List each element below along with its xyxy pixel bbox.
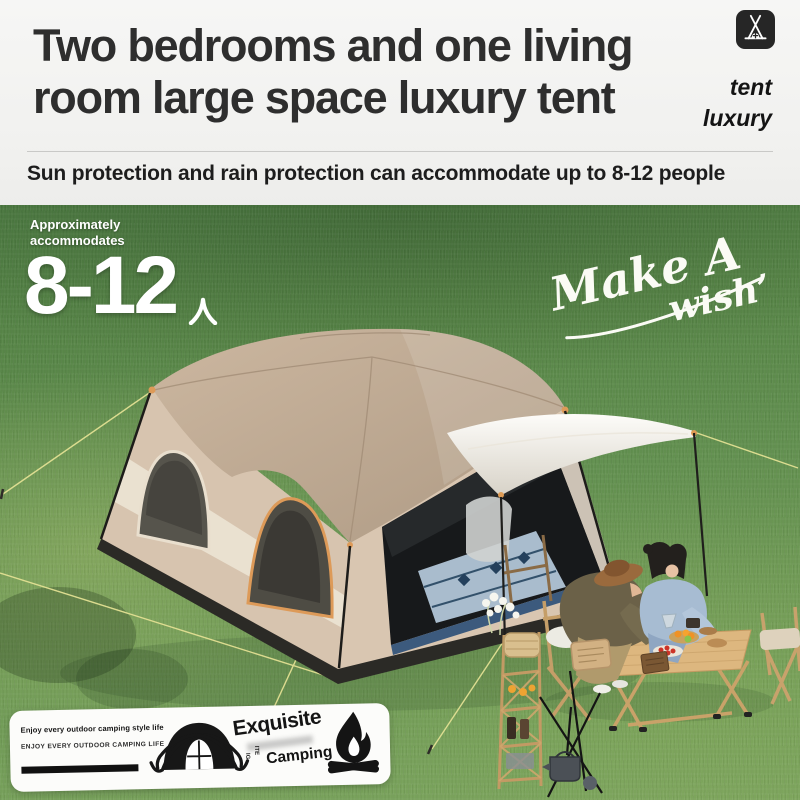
capacity-label-line1: Approximately [30,217,125,233]
product-poster: Two bedrooms and one living room large s… [0,0,800,800]
title-line-1: Two bedrooms and one living [33,20,723,72]
header-divider [27,151,773,152]
subtitle: Sun protection and rain protection can a… [27,162,787,186]
page-title: Two bedrooms and one living room large s… [33,20,723,124]
header: Two bedrooms and one living room large s… [0,0,800,205]
right-chair-illustration [759,607,800,704]
badge-vertical-text-2: IG [244,753,250,759]
person-kanji-icon [188,297,218,325]
badge-vertical-text-1: ITE [253,746,259,755]
tent-icon [740,12,771,48]
badge-bar [21,764,138,773]
brand-words: tent luxury [703,72,772,134]
title-line-2: room large space luxury tent [33,72,723,124]
brand-word-tent: tent [703,72,772,103]
badge-tagline: Enjoy every outdoor camping style life [21,723,164,735]
brand-logo [736,10,775,49]
campfire-icon [321,708,384,777]
wood-sign-illustration [571,639,612,671]
brand-word-luxury: luxury [703,103,772,134]
badge-tagline-caps: ENJOY EVERY OUTDOOR CAMPING LIFE [21,741,165,751]
capacity-value: 8-12 [24,245,176,327]
camping-badge: Enjoy every outdoor camping style life E… [9,703,391,792]
